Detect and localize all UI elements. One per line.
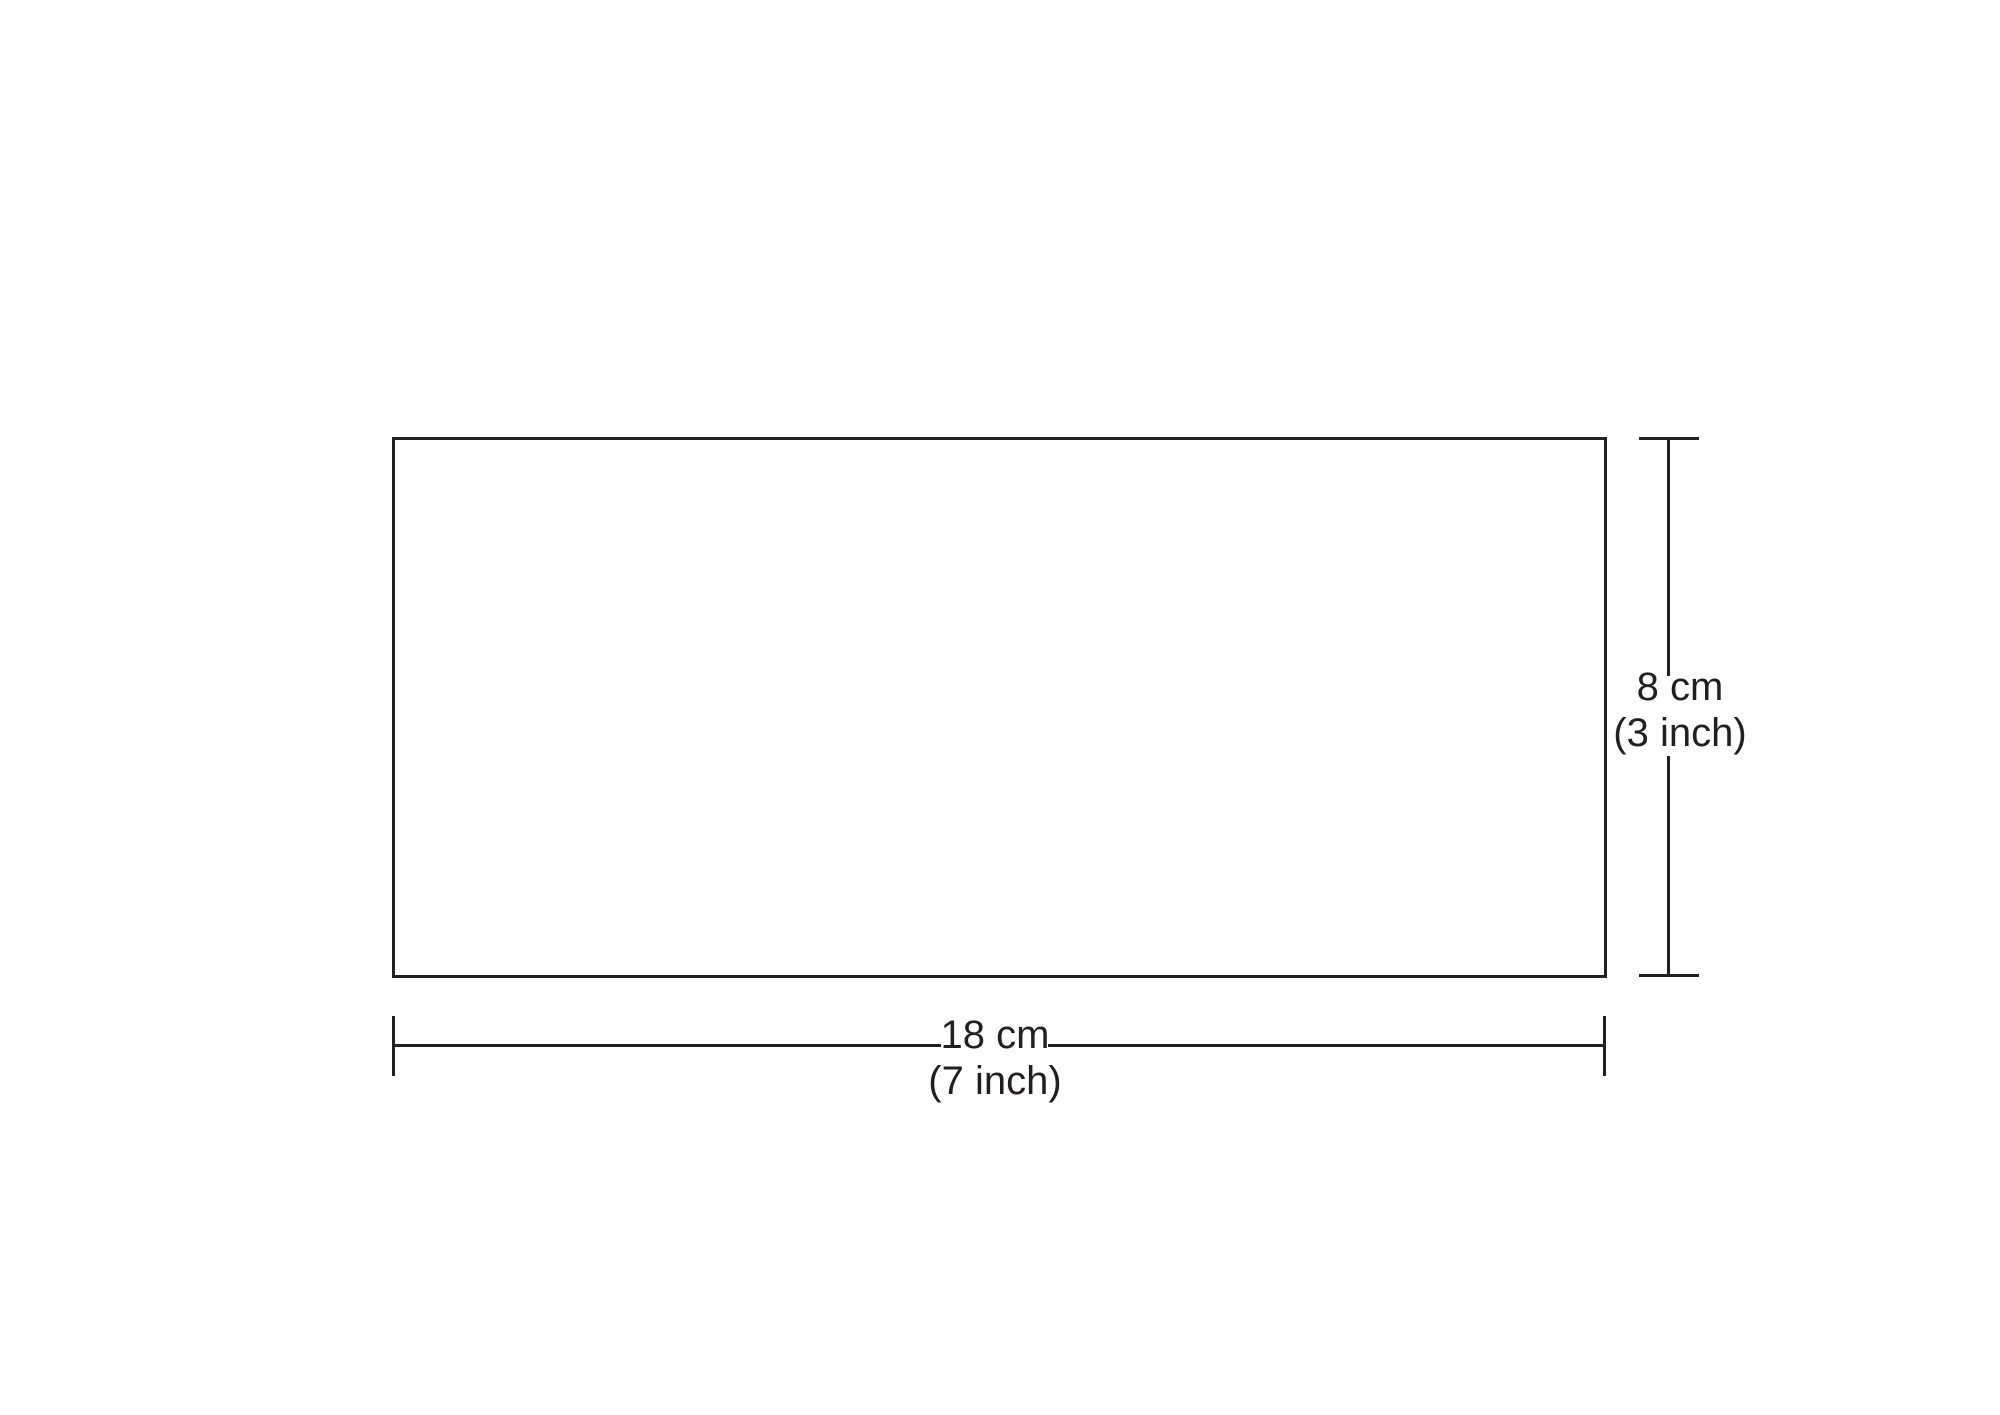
height-dimension-label: 8 cm (3 inch) <box>1570 664 1790 756</box>
height-label-cm: 8 cm <box>1570 664 1790 710</box>
height-dimension-line-upper <box>1667 440 1670 676</box>
diagram-canvas: 8 cm (3 inch) 18 cm (7 inch) <box>0 0 2000 1415</box>
width-dimension-line-right <box>1048 1044 1603 1047</box>
rectangle-shape <box>392 437 1607 978</box>
height-dimension-bottom-tick <box>1639 974 1699 977</box>
height-label-inch: (3 inch) <box>1570 710 1790 756</box>
width-dimension-label: 18 cm (7 inch) <box>875 1012 1115 1104</box>
width-dimension-line-left <box>395 1044 941 1047</box>
height-dimension-line-lower <box>1667 756 1670 974</box>
width-label-cm: 18 cm <box>875 1012 1115 1058</box>
width-dimension-right-tick <box>1603 1016 1606 1076</box>
width-label-inch: (7 inch) <box>875 1058 1115 1104</box>
